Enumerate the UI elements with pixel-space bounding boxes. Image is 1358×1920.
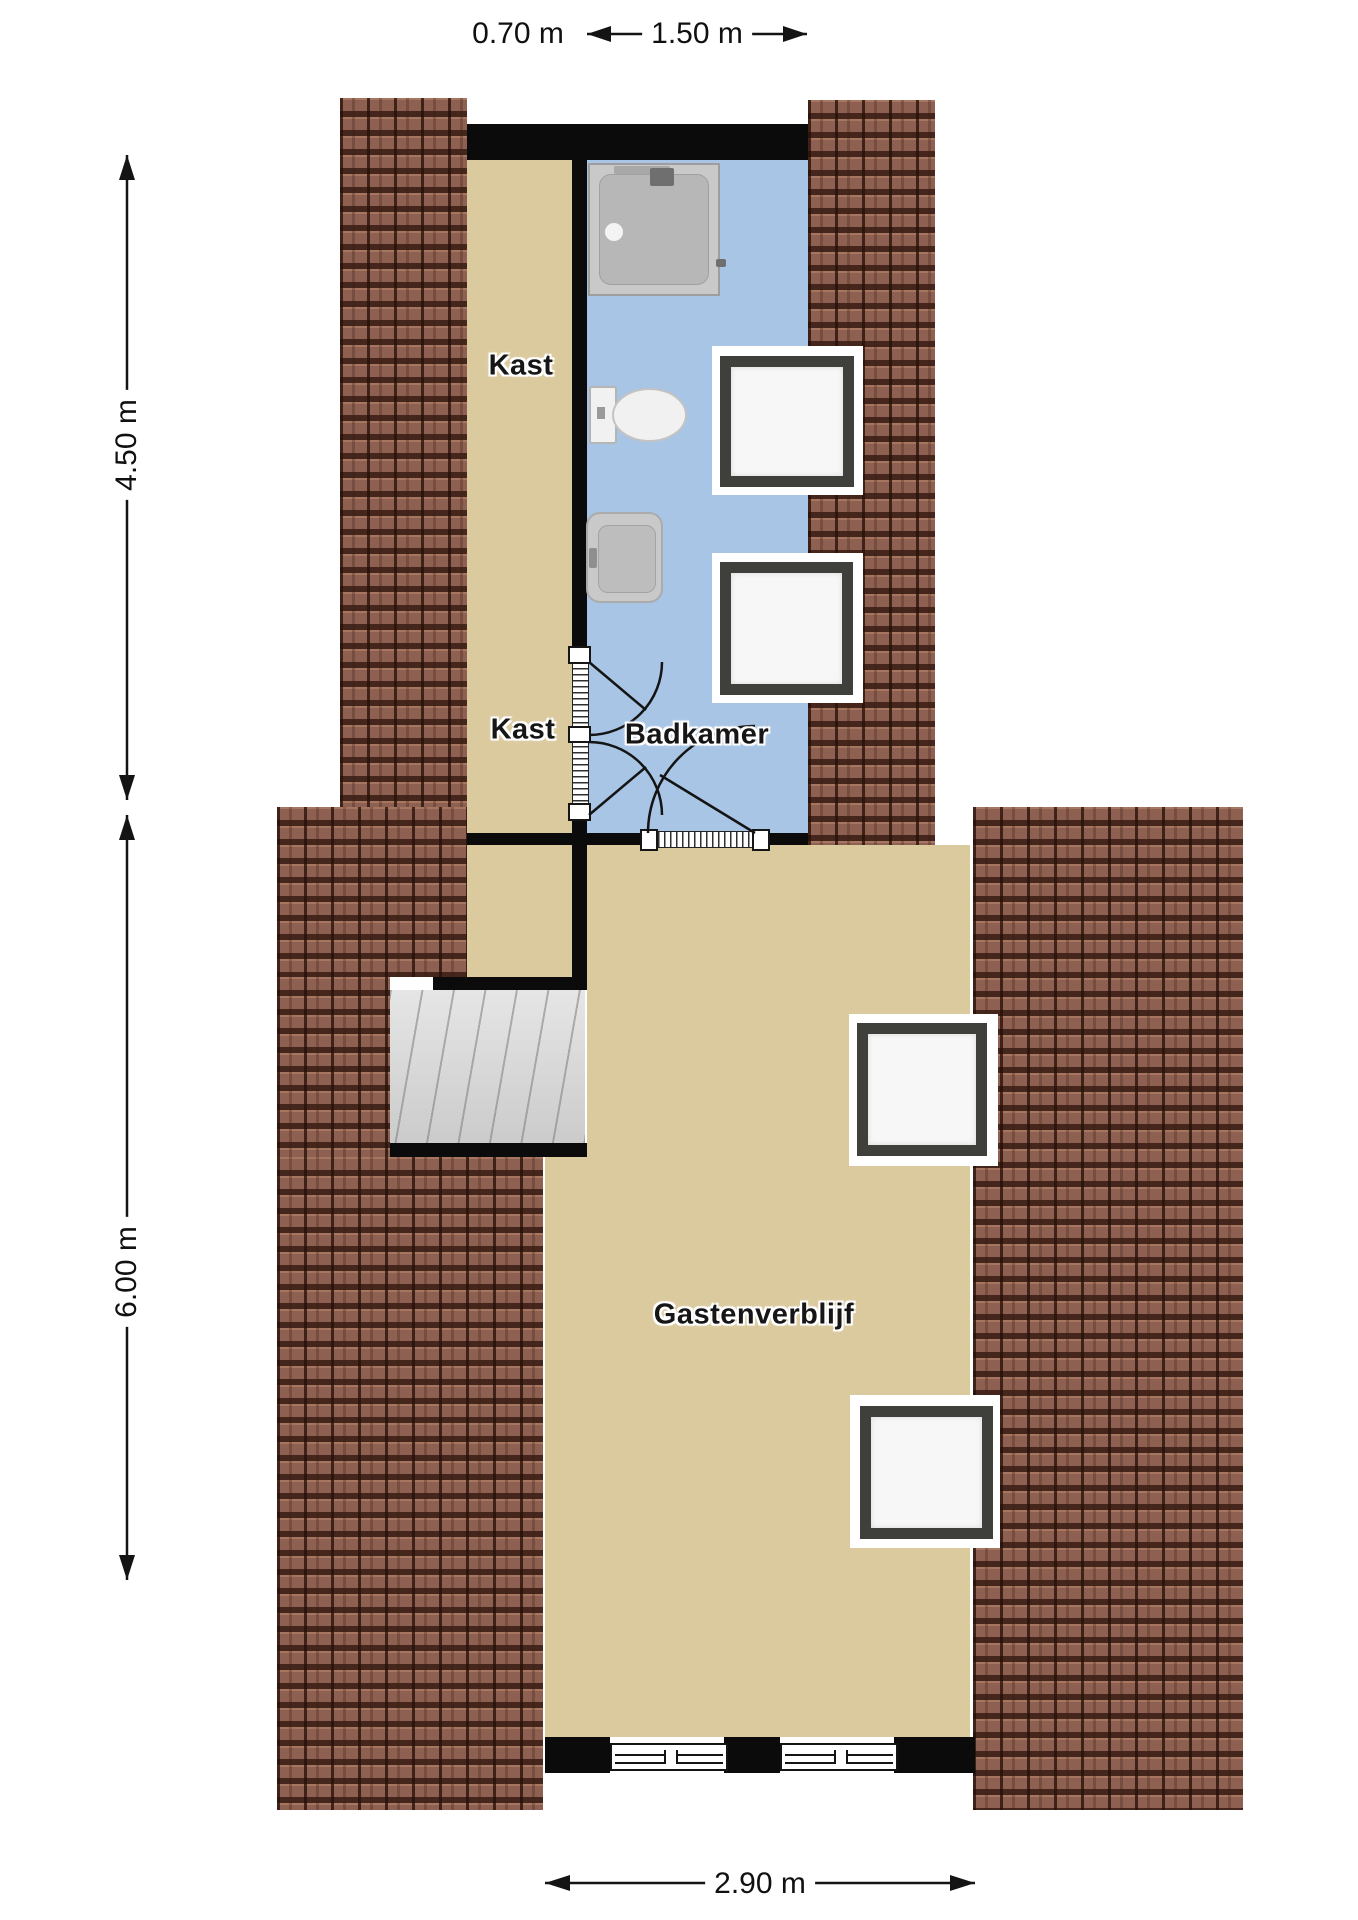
shower [588,163,720,296]
roof-lower-left-b [277,977,390,1157]
bathroom-door-opening [646,831,760,848]
staircase [390,990,585,1143]
room-label-badkamer: Badkamer [625,719,769,752]
skylight-frame [720,562,853,695]
skylight-window-1 [712,346,863,495]
wall-stairs-top [433,977,587,990]
room-label-kast-top: Kast [489,350,554,383]
skylight-frame [720,356,854,487]
door-jamb-top [568,646,591,664]
room-label-kast-mid: Kast [491,714,556,747]
bottom-window-right [780,1743,898,1771]
dimension-bottom: 2.90 m [705,1867,815,1901]
toilet-bowl [612,388,687,442]
door-jamb-bottom [568,803,591,821]
wall-bottom-seg1 [545,1737,610,1773]
dimension-left-lower: 6.00 m [110,1217,144,1327]
door-jamb-middle [568,726,591,743]
wall-stairs-bottom [390,1143,587,1157]
wall-bath-bottom-left [467,833,646,845]
sink-basin [598,525,656,593]
shower-handle-icon [716,259,726,267]
dimension-top-main: 1.50 m [642,17,752,51]
sink-faucet-icon [589,548,597,568]
wall-bottom-seg2 [724,1737,780,1773]
floorplan-canvas: Kast Kast Badkamer Gastenverblijf 0.70 m… [0,0,1358,1920]
wall-bottom-seg3 [894,1737,975,1773]
roof-lower-right [973,807,1243,1810]
skylight-frame [857,1023,987,1156]
gastenverblijf-floor-left [545,1157,587,1737]
dimension-top-left: 0.70 m [463,17,573,51]
skylight-window-2 [712,553,863,703]
wall-kast-bath-upper [572,124,587,650]
gastenverblijf-floor [587,845,970,1737]
shower-mixer-icon [650,168,674,186]
room-label-gastenverblijf: Gastenverblijf [654,1299,854,1332]
window-mullion [834,1750,848,1763]
window-mullion [664,1750,678,1763]
skylight-window-4 [850,1395,1000,1548]
bathroom-door-jamb-right [752,829,770,851]
skylight-window-3 [849,1014,998,1166]
skylight-frame [860,1406,993,1539]
roof-upper-left [340,98,467,807]
roof-lower-left-c [277,1157,543,1810]
wall-top [467,124,808,160]
bathroom-door-jamb-left [640,829,658,851]
dimension-left-upper: 4.50 m [110,390,144,500]
sink [586,512,663,603]
toilet-button-icon [597,407,605,419]
corridor-floor [467,845,572,977]
roof-lower-left-a [277,807,467,977]
bottom-window-left [610,1743,728,1771]
shower-drain-icon [605,223,623,241]
